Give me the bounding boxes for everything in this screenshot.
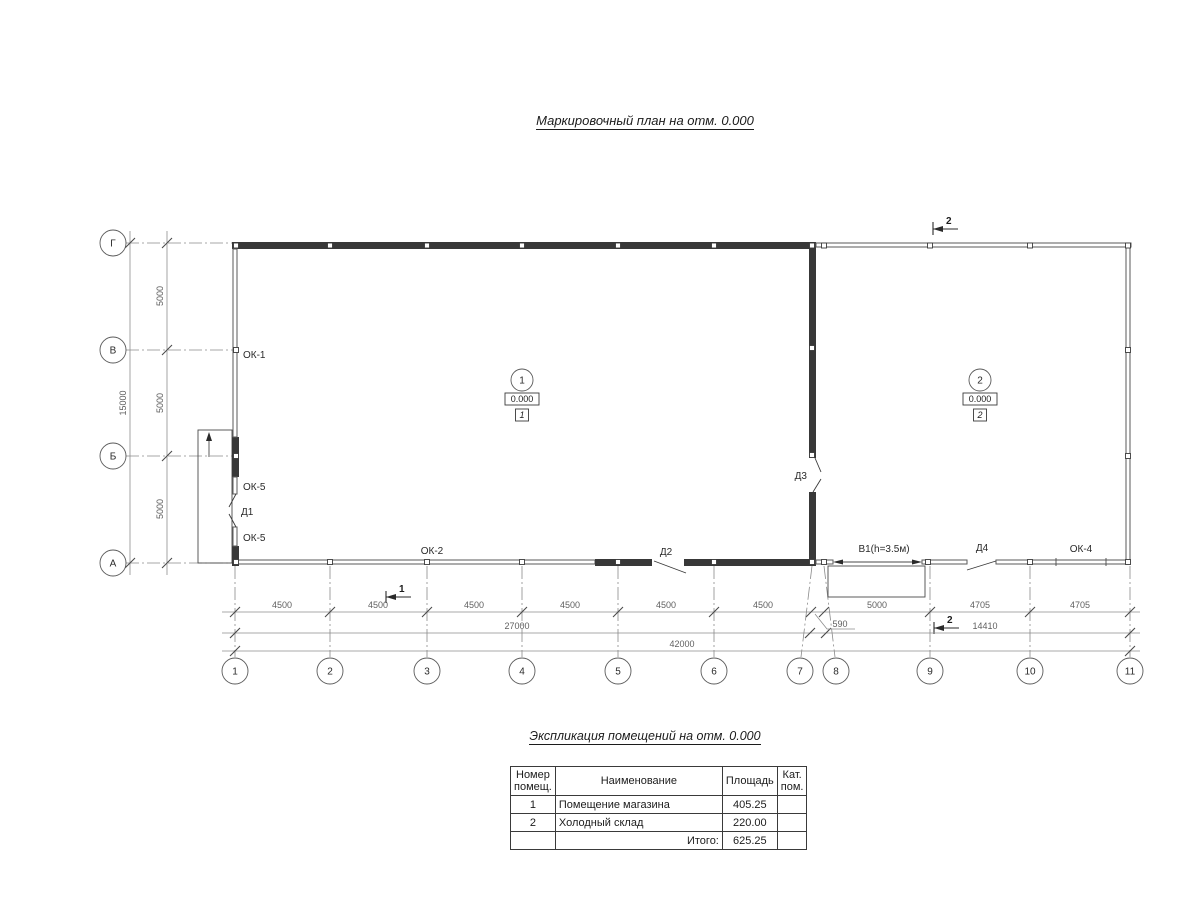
row2-name: Холодный склад [555,814,722,832]
axis-9: 9 [927,667,933,678]
axis-g: Г [110,239,116,250]
row2-area: 220.00 [722,814,777,832]
header-name: Наименование [555,767,722,796]
opening-labels: ОК-1 ОК-5 Д1 ОК-5 ОК-2 Д2 Д3 В1(h=3.5м) … [241,350,1093,558]
axis-3: 3 [424,667,430,678]
row1-name: Помещение магазина [555,796,722,814]
dim-4500-6: 4500 [753,600,773,610]
label-ok4: ОК-4 [1070,544,1093,555]
bottom-dimension-texts: 4500 4500 4500 4500 4500 4500 5000 4705 … [272,600,1090,649]
section-2-bottom-label: 2 [947,615,953,626]
room1-number: 1 [519,376,525,387]
label-ok5-lower: ОК-5 [243,533,266,544]
dim-4500-4: 4500 [560,600,580,610]
header-category: Кат. пом. [777,767,807,796]
label-ok2: ОК-2 [421,546,444,557]
label-ok1: ОК-1 [243,350,266,361]
dim-4500-5: 4500 [656,600,676,610]
section-mark-1-bottom: 1 [386,584,411,603]
dim-4500-1: 4500 [272,600,292,610]
axis-2: 2 [327,667,333,678]
dim-5000: 5000 [867,600,887,610]
explication-title-text: Экспликация помещений на отм. 0.000 [529,729,760,745]
axis-7: 7 [797,667,803,678]
section-mark-2-bottom: 2 [934,615,959,634]
dim-4500-3: 4500 [464,600,484,610]
room2-tag: 2 [976,410,982,420]
axis-b: Б [110,452,117,463]
section-1-bottom-label: 1 [399,584,405,595]
room1-tag: 1 [519,410,524,420]
total-category-cell [777,832,807,850]
explication-table: Номер помещ. Наименование Площадь Кат. п… [510,766,807,850]
table-row: 1 Помещение магазина 405.25 [511,796,807,814]
room2-mark: 2 0.000 2 [963,369,997,421]
room1-walls [229,242,821,573]
horizontal-axis-lines [126,243,236,563]
explication-title: Экспликация помещений на отм. 0.000 [400,727,890,745]
section-mark-2-top: 2 [933,216,958,235]
total-number-cell [511,832,556,850]
label-d3: Д3 [795,471,808,482]
table-row: 2 Холодный склад 220.00 [511,814,807,832]
axis-6: 6 [711,667,717,678]
col-axis-bubbles: 1 2 3 4 5 6 7 8 9 10 11 [222,658,1143,684]
axis-8: 8 [833,667,839,678]
dim-v5000-1: 5000 [155,286,165,306]
room2-elevation: 0.000 [969,394,992,404]
row1-number: 1 [511,796,556,814]
room2-number: 2 [977,376,983,387]
dim-27000: 27000 [504,621,529,631]
total-label: Итого: [555,832,722,850]
dim-590: 590 [832,619,847,629]
floor-plan: ОК-1 ОК-5 Д1 ОК-5 ОК-2 Д2 Д3 В1(h=3.5м) … [0,0,1200,900]
axis-v: В [110,346,117,357]
dim-4705-2: 4705 [1070,600,1090,610]
dim-15000: 15000 [118,390,128,415]
axis-11: 11 [1125,667,1136,678]
dim-4705-1: 4705 [970,600,990,610]
table-header-row: Номер помещ. Наименование Площадь Кат. п… [511,767,807,796]
label-d2: Д2 [660,547,673,558]
label-d1: Д1 [241,507,254,518]
dim-v5000-2: 5000 [155,393,165,413]
header-area: Площадь [722,767,777,796]
loading-dock [828,566,925,597]
room1-mark: 1 0.000 1 [505,369,539,421]
row2-number: 2 [511,814,556,832]
label-v1: В1(h=3.5м) [858,544,909,555]
dim-4500-2: 4500 [368,600,388,610]
section-2-top-label: 2 [946,216,952,227]
dim-14410: 14410 [972,621,997,631]
entrance-ramp [198,430,232,563]
row1-area: 405.25 [722,796,777,814]
label-d4: Д4 [976,543,989,554]
axis-1: 1 [232,667,238,678]
axis-a: А [110,559,117,570]
label-ok5-upper: ОК-5 [243,482,266,493]
axis-4: 4 [519,667,525,678]
header-number: Номер помещ. [511,767,556,796]
axis-10: 10 [1024,667,1036,678]
row2-category [777,814,807,832]
dim-v5000-3: 5000 [155,499,165,519]
axis-5: 5 [615,667,621,678]
room2-walls [816,243,1131,570]
room1-elevation: 0.000 [511,394,534,404]
dim-42000: 42000 [669,639,694,649]
left-dimension-texts: 5000 5000 5000 15000 [118,286,165,519]
total-area: 625.25 [722,832,777,850]
drawing-sheet: Маркировочный план на отм. 0.000 [0,0,1200,900]
table-total-row: Итого: 625.25 [511,832,807,850]
row1-category [777,796,807,814]
